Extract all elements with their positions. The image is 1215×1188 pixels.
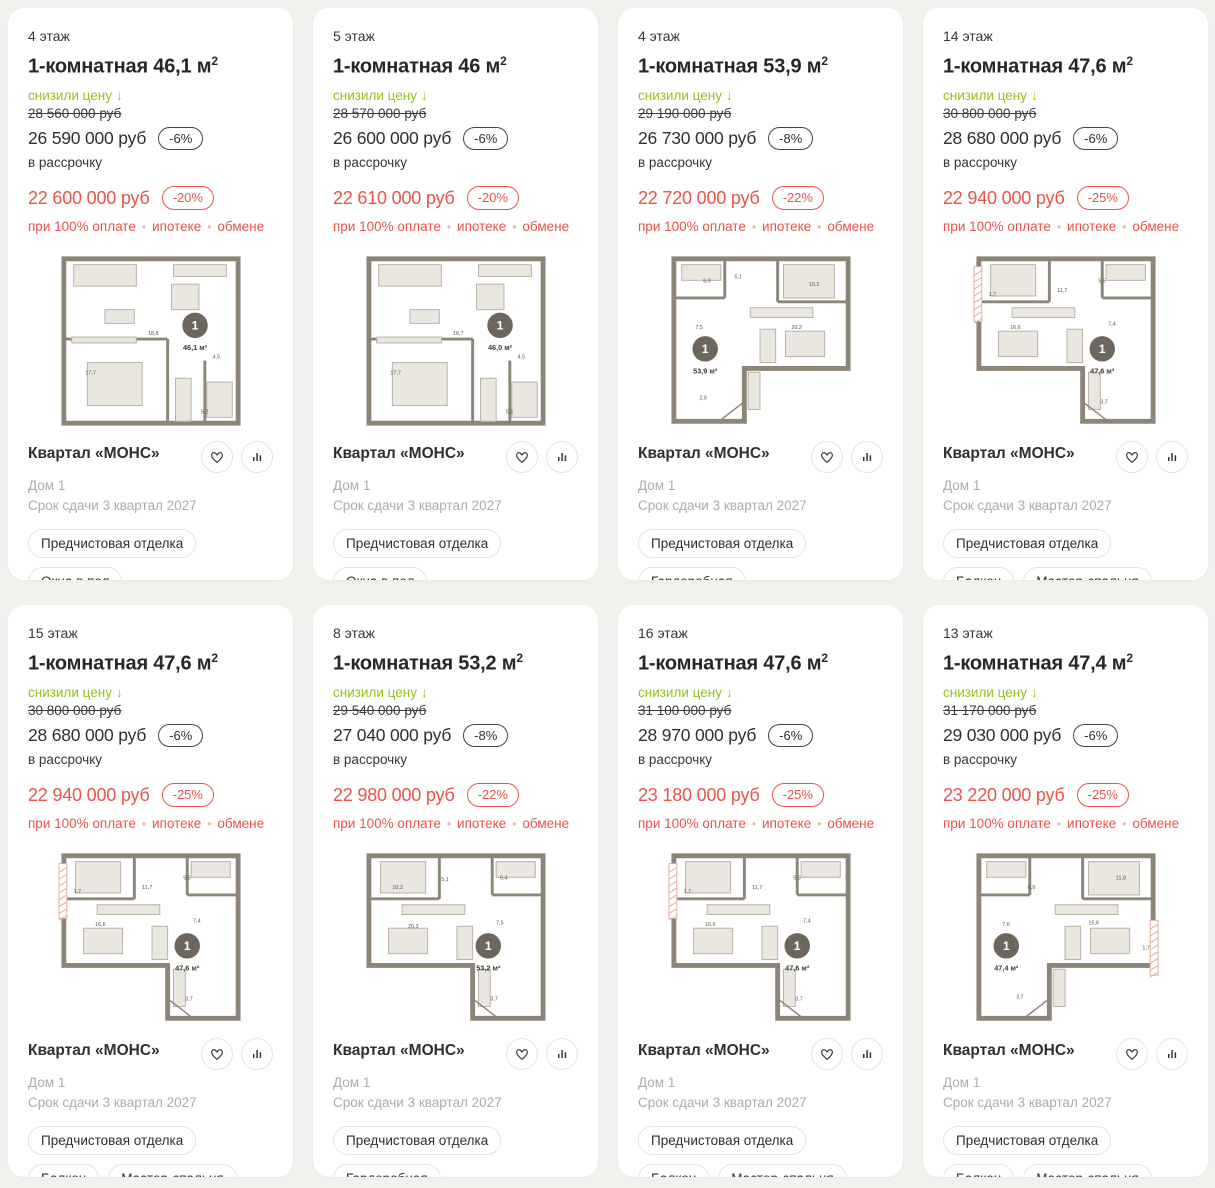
project-name[interactable]: Квартал «МОНС» (638, 1042, 770, 1060)
feature-tag[interactable]: Мастер-спальня (108, 1164, 236, 1177)
condition-exchange: обмене (217, 816, 264, 831)
deadline-label: Срок сдачи 3 квартал 2027 (333, 498, 578, 513)
condition-mortgage: ипотеке (762, 816, 811, 831)
installment-price: 22 610 000 руб (333, 188, 455, 209)
price-reduced-label: снизили цену↓ (638, 685, 883, 700)
floor-label: 5 этаж (333, 28, 578, 44)
installment-price: 23 180 000 руб (638, 785, 760, 806)
main-price: 28 680 000 руб (28, 725, 146, 746)
installment-price-row: 23 180 000 руб -25% (638, 783, 883, 807)
payment-conditions: при 100% оплате•ипотеке•обмене (943, 219, 1188, 234)
main-price: 26 590 000 руб (28, 128, 146, 149)
payment-conditions: при 100% оплате•ипотеке•обмене (28, 219, 273, 234)
svg-text:7,5: 7,5 (496, 920, 503, 926)
compare-button[interactable] (851, 1038, 883, 1070)
svg-text:53,9 м²: 53,9 м² (693, 366, 718, 375)
card-footer: Квартал «МОНС» (638, 1042, 883, 1070)
installment-price: 22 600 000 руб (28, 188, 150, 209)
card-action-buttons (201, 441, 273, 473)
card-footer: Квартал «МОНС» (943, 1042, 1188, 1070)
condition-full-payment: при 100% оплате (333, 816, 441, 831)
deadline-label: Срок сдачи 3 квартал 2027 (638, 1095, 883, 1110)
feature-tag[interactable]: Предчистовая отделка (638, 1126, 806, 1155)
square-meter-sup: 2 (211, 651, 217, 665)
apartment-title-text: 1-комнатная 53,2 м (333, 653, 516, 675)
old-price: 28 570 000 руб (333, 106, 578, 121)
installment-price: 22 940 000 руб (28, 785, 150, 806)
floor-plan[interactable]: 11,79,51,716,67,43,7147,6 м² (638, 842, 883, 1034)
svg-text:18,7: 18,7 (453, 331, 463, 337)
floor-plan-svg: 11,79,51,716,67,43,7147,6 м² (973, 252, 1159, 430)
price-reduced-text: снизили цену (943, 88, 1027, 103)
apartment-title-text: 1-комнатная 47,6 м (638, 653, 821, 675)
feature-tag[interactable]: Балкон (943, 1164, 1014, 1177)
favorite-button[interactable] (811, 1038, 843, 1070)
tags: Предчистовая отделкаОкна в пол (333, 529, 578, 580)
main-price: 27 040 000 руб (333, 725, 451, 746)
svg-text:53,2 м²: 53,2 м² (476, 963, 501, 972)
installment-label: в рассрочку (28, 155, 273, 170)
svg-text:1: 1 (701, 342, 708, 356)
installment-label: в рассрочку (638, 752, 883, 767)
discount-badge: -6% (1073, 127, 1118, 151)
svg-text:16,6: 16,6 (705, 922, 715, 928)
main-price: 26 600 000 руб (333, 128, 451, 149)
heart-icon (209, 1046, 225, 1062)
discount-badge: -6% (463, 127, 508, 151)
tags: Предчистовая отделкаГардеробнаяМастер-сп… (333, 1126, 578, 1177)
feature-tag[interactable]: Предчистовая отделка (333, 1126, 501, 1155)
project-name[interactable]: Квартал «МОНС» (638, 445, 770, 463)
price-row: 27 040 000 руб -8% (333, 724, 578, 748)
floor-plan-svg: 6,95,110,27,520,22,9153,9 м² (668, 252, 854, 430)
tags: Предчистовая отделкаБалконМастер-спальня (943, 1126, 1188, 1177)
payment-conditions: при 100% оплате•ипотеке•обмене (28, 816, 273, 831)
condition-mortgage: ипотеке (152, 219, 201, 234)
svg-text:6,4: 6,4 (500, 875, 507, 881)
installment-label: в рассрочку (333, 155, 578, 170)
bar-chart-icon (554, 1046, 570, 1062)
payment-conditions: при 100% оплате•ипотеке•обмене (333, 816, 578, 831)
floor-plan-svg: 11,79,51,716,67,43,7147,6 м² (668, 849, 854, 1027)
payment-conditions: при 100% оплате•ипотеке•обмене (333, 219, 578, 234)
installment-price-row: 22 940 000 руб -25% (28, 783, 273, 807)
deadline-label: Срок сдачи 3 квартал 2027 (943, 1095, 1188, 1110)
listing-card[interactable]: 4 этаж 1-комнатная 53,9 м2 снизили цену↓… (618, 8, 903, 580)
main-price: 28 680 000 руб (943, 128, 1061, 149)
arrow-down-icon: ↓ (421, 88, 428, 103)
apartment-title-text: 1-комнатная 47,4 м (943, 653, 1126, 675)
svg-text:5,2: 5,2 (200, 409, 207, 415)
feature-tag[interactable]: Окна в пол (333, 567, 427, 580)
house-label: Дом 1 (28, 1075, 273, 1090)
card-action-buttons (1116, 1038, 1188, 1070)
svg-text:3,7: 3,7 (1100, 399, 1107, 405)
price-reduced-label: снизили цену↓ (28, 88, 273, 103)
feature-tag[interactable]: Балкон (638, 1164, 709, 1177)
dot-separator: • (447, 220, 451, 234)
feature-tag[interactable]: Предчистовая отделка (638, 529, 806, 558)
installment-label: в рассрочку (638, 155, 883, 170)
svg-text:1: 1 (496, 319, 503, 333)
discount-badge: -6% (768, 724, 813, 748)
listing-card[interactable]: 13 этаж 1-комнатная 47,4 м2 снизили цену… (923, 605, 1208, 1177)
heart-icon (514, 1046, 530, 1062)
house-label: Дом 1 (638, 1075, 883, 1090)
square-meter-sup: 2 (1126, 651, 1132, 665)
old-price: 29 540 000 руб (333, 703, 578, 718)
svg-text:1: 1 (183, 939, 190, 953)
feature-tag[interactable]: Мастер-спальня (718, 1164, 846, 1177)
project-name[interactable]: Квартал «МОНС» (333, 1042, 465, 1060)
payment-conditions: при 100% оплате•ипотеке•обмене (943, 816, 1188, 831)
bar-chart-icon (249, 449, 265, 465)
condition-mortgage: ипотеке (762, 219, 811, 234)
feature-tag[interactable]: Мастер-спальня (1023, 1164, 1151, 1177)
floor-plan-svg: 6,911,87,615,61,73,7147,4 м² (973, 849, 1159, 1027)
arrow-down-icon: ↓ (1031, 88, 1038, 103)
apartment-title: 1-комнатная 53,9 м2 (638, 54, 883, 79)
feature-tag[interactable]: Предчистовая отделка (943, 1126, 1111, 1155)
installment-label: в рассрочку (943, 752, 1188, 767)
installment-discount-badge: -25% (162, 783, 214, 807)
floor-plan[interactable]: 10,25,16,420,37,53,7153,2 м² (333, 842, 578, 1034)
discount-badge: -8% (463, 724, 508, 748)
main-price: 29 030 000 руб (943, 725, 1061, 746)
apartment-title: 1-комнатная 47,6 м2 (28, 651, 273, 676)
old-price: 29 190 000 руб (638, 106, 883, 121)
condition-mortgage: ипотеке (1067, 219, 1116, 234)
price-row: 28 680 000 руб -6% (28, 724, 273, 748)
listing-card[interactable]: 8 этаж 1-комнатная 53,2 м2 снизили цену↓… (313, 605, 598, 1177)
card-footer: Квартал «МОНС» (333, 1042, 578, 1070)
svg-text:5,1: 5,1 (734, 274, 741, 280)
svg-text:17,7: 17,7 (85, 370, 95, 376)
heart-icon (1124, 1046, 1140, 1062)
favorite-button[interactable] (506, 441, 538, 473)
card-action-buttons (811, 441, 883, 473)
condition-full-payment: при 100% оплате (28, 219, 136, 234)
installment-price: 22 720 000 руб (638, 188, 760, 209)
bar-chart-icon (1164, 449, 1180, 465)
installment-discount-badge: -25% (1077, 186, 1129, 210)
svg-text:6,9: 6,9 (703, 278, 710, 284)
condition-exchange: обмене (1132, 816, 1179, 831)
svg-text:18,8: 18,8 (148, 331, 158, 337)
svg-text:3,7: 3,7 (795, 996, 802, 1002)
listing-card[interactable]: 5 этаж 1-комнатная 46 м2 снизили цену↓ 2… (313, 8, 598, 580)
installment-price-row: 22 610 000 руб -20% (333, 186, 578, 210)
dot-separator: • (1122, 220, 1126, 234)
svg-text:10,2: 10,2 (808, 282, 818, 288)
heart-icon (1124, 449, 1140, 465)
card-footer: Квартал «МОНС» (28, 1042, 273, 1070)
bar-chart-icon (554, 449, 570, 465)
price-row: 26 600 000 руб -6% (333, 127, 578, 151)
floor-plan[interactable]: 18,817,74,55,2146,1 м² (28, 245, 273, 437)
price-row: 26 590 000 руб -6% (28, 127, 273, 151)
floor-label: 8 этаж (333, 625, 578, 641)
feature-tag[interactable]: Окна в пол (28, 567, 122, 580)
arrow-down-icon: ↓ (726, 685, 733, 700)
apartment-title-text: 1-комнатная 47,6 м (943, 56, 1126, 78)
compare-button[interactable] (1156, 1038, 1188, 1070)
project-name[interactable]: Квартал «МОНС» (28, 445, 160, 463)
dot-separator: • (752, 220, 756, 234)
price-reduced-text: снизили цену (638, 685, 722, 700)
favorite-button[interactable] (811, 441, 843, 473)
project-name[interactable]: Квартал «МОНС» (333, 445, 465, 463)
compare-button[interactable] (851, 441, 883, 473)
favorite-button[interactable] (1116, 441, 1148, 473)
feature-tag[interactable]: Предчистовая отделка (333, 529, 501, 558)
favorite-button[interactable] (201, 441, 233, 473)
floor-plan[interactable]: 11,79,61,716,67,43,7147,6 м² (28, 842, 273, 1034)
floor-plan[interactable]: 18,717,74,55,1146,0 м² (333, 245, 578, 437)
svg-text:6,9: 6,9 (1027, 885, 1034, 891)
old-price: 30 800 000 руб (943, 106, 1188, 121)
price-reduced-text: снизили цену (638, 88, 722, 103)
heart-icon (514, 449, 530, 465)
old-price: 30 800 000 руб (28, 703, 273, 718)
svg-text:11,8: 11,8 (1115, 875, 1125, 881)
condition-exchange: обмене (827, 816, 874, 831)
feature-tag[interactable]: Гардеробная (333, 1164, 441, 1177)
condition-exchange: обмене (827, 219, 874, 234)
feature-tag[interactable]: Балкон (28, 1164, 99, 1177)
svg-text:20,2: 20,2 (791, 325, 801, 331)
condition-exchange: обмене (1132, 219, 1179, 234)
installment-discount-badge: -20% (162, 186, 214, 210)
square-meter-sup: 2 (821, 54, 827, 68)
svg-text:11,7: 11,7 (1057, 288, 1067, 294)
house-label: Дом 1 (943, 478, 1188, 493)
svg-text:1: 1 (484, 939, 491, 953)
project-name[interactable]: Квартал «МОНС» (943, 445, 1075, 463)
price-reduced-label: снизили цену↓ (333, 685, 578, 700)
main-price: 28 970 000 руб (638, 725, 756, 746)
svg-text:17,7: 17,7 (390, 370, 400, 376)
dot-separator: • (1057, 817, 1061, 831)
card-action-buttons (506, 441, 578, 473)
listing-card[interactable]: 14 этаж 1-комнатная 47,6 м2 снизили цену… (923, 8, 1208, 580)
card-action-buttons (1116, 441, 1188, 473)
compare-button[interactable] (241, 441, 273, 473)
price-reduced-label: снизили цену↓ (943, 88, 1188, 103)
installment-discount-badge: -20% (467, 186, 519, 210)
project-name[interactable]: Квартал «МОНС» (943, 1042, 1075, 1060)
feature-tag[interactable]: Балкон (943, 567, 1014, 580)
dot-separator: • (142, 220, 146, 234)
feature-tag[interactable]: Предчистовая отделка (28, 1126, 196, 1155)
deadline-label: Срок сдачи 3 квартал 2027 (28, 498, 273, 513)
svg-text:3,7: 3,7 (1016, 995, 1023, 1001)
installment-discount-badge: -22% (467, 783, 519, 807)
card-action-buttons (201, 1038, 273, 1070)
price-reduced-text: снизили цену (333, 685, 417, 700)
arrow-down-icon: ↓ (1031, 685, 1038, 700)
house-label: Дом 1 (333, 478, 578, 493)
svg-text:3,7: 3,7 (490, 996, 497, 1002)
arrow-down-icon: ↓ (421, 685, 428, 700)
svg-text:47,4 м²: 47,4 м² (994, 963, 1019, 972)
condition-exchange: обмене (217, 219, 264, 234)
feature-tag[interactable]: Предчистовая отделка (28, 529, 196, 558)
listing-card[interactable]: 4 этаж 1-комнатная 46,1 м2 снизили цену↓… (8, 8, 293, 580)
old-price: 28 560 000 руб (28, 106, 273, 121)
installment-price-row: 22 600 000 руб -20% (28, 186, 273, 210)
svg-text:4,5: 4,5 (517, 354, 524, 360)
apartment-title-text: 1-комнатная 53,9 м (638, 56, 821, 78)
condition-full-payment: при 100% оплате (333, 219, 441, 234)
svg-text:7,5: 7,5 (695, 325, 702, 331)
favorite-button[interactable] (506, 1038, 538, 1070)
floor-label: 4 этаж (28, 28, 273, 44)
square-meter-sup: 2 (821, 651, 827, 665)
svg-text:47,6 м²: 47,6 м² (1090, 366, 1115, 375)
svg-text:7,6: 7,6 (1002, 922, 1009, 928)
svg-text:1,7: 1,7 (1142, 946, 1149, 952)
floor-plan-svg: 11,79,61,716,67,43,7147,6 м² (58, 849, 244, 1027)
svg-text:16,6: 16,6 (1010, 325, 1020, 331)
dot-separator: • (1057, 220, 1061, 234)
listings-grid: 4 этаж 1-комнатная 46,1 м2 снизили цену↓… (0, 0, 1215, 1185)
arrow-down-icon: ↓ (726, 88, 733, 103)
listing-card[interactable]: 16 этаж 1-комнатная 47,6 м2 снизили цену… (618, 605, 903, 1177)
svg-text:2,9: 2,9 (699, 396, 706, 402)
apartment-title: 1-комнатная 46 м2 (333, 54, 578, 79)
svg-text:9,6: 9,6 (183, 875, 190, 881)
condition-full-payment: при 100% оплате (638, 219, 746, 234)
svg-text:1,7: 1,7 (683, 889, 690, 895)
svg-text:11,7: 11,7 (142, 885, 152, 891)
old-price: 31 170 000 руб (943, 703, 1188, 718)
old-price: 31 100 000 руб (638, 703, 883, 718)
card-footer: Квартал «МОНС» (28, 445, 273, 473)
bar-chart-icon (859, 1046, 875, 1062)
price-reduced-text: снизили цену (28, 685, 112, 700)
svg-text:10,2: 10,2 (392, 885, 402, 891)
installment-price: 23 220 000 руб (943, 785, 1065, 806)
price-reduced-label: снизили цену↓ (943, 685, 1188, 700)
condition-full-payment: при 100% оплате (28, 816, 136, 831)
installment-label: в рассрочку (333, 752, 578, 767)
deadline-label: Срок сдачи 3 квартал 2027 (333, 1095, 578, 1110)
house-label: Дом 1 (943, 1075, 1188, 1090)
tags: Предчистовая отделкаБалконМастер-спальня (943, 529, 1188, 580)
svg-text:1,7: 1,7 (73, 889, 80, 895)
price-row: 29 030 000 руб -6% (943, 724, 1188, 748)
square-meter-sup: 2 (500, 54, 506, 68)
dot-separator: • (512, 220, 516, 234)
floor-label: 16 этаж (638, 625, 883, 641)
apartment-title-text: 1-комнатная 46 м (333, 56, 500, 78)
bar-chart-icon (859, 449, 875, 465)
svg-text:7,4: 7,4 (803, 918, 810, 924)
floor-plan[interactable]: 11,79,51,716,67,43,7147,6 м² (943, 245, 1188, 437)
compare-button[interactable] (546, 1038, 578, 1070)
floor-plan-svg: 18,817,74,55,2146,1 м² (58, 252, 244, 430)
compare-button[interactable] (241, 1038, 273, 1070)
installment-label: в рассрочку (943, 155, 1188, 170)
listing-card[interactable]: 15 этаж 1-комнатная 47,6 м2 снизили цену… (8, 605, 293, 1177)
dot-separator: • (752, 817, 756, 831)
price-row: 28 970 000 руб -6% (638, 724, 883, 748)
compare-button[interactable] (1156, 441, 1188, 473)
svg-text:1: 1 (1098, 342, 1105, 356)
apartment-title: 1-комнатная 46,1 м2 (28, 54, 273, 79)
svg-text:47,6 м²: 47,6 м² (785, 963, 810, 972)
apartment-title: 1-комнатная 53,2 м2 (333, 651, 578, 676)
apartment-title: 1-комнатная 47,6 м2 (943, 54, 1188, 79)
feature-tag[interactable]: Гардеробная (638, 567, 746, 580)
favorite-button[interactable] (201, 1038, 233, 1070)
dot-separator: • (817, 220, 821, 234)
discount-badge: -8% (768, 127, 813, 151)
floor-label: 4 этаж (638, 28, 883, 44)
square-meter-sup: 2 (516, 651, 522, 665)
floor-label: 15 этаж (28, 625, 273, 641)
svg-text:16,6: 16,6 (95, 922, 105, 928)
condition-exchange: обмене (522, 219, 569, 234)
installment-discount-badge: -22% (772, 186, 824, 210)
deadline-label: Срок сдачи 3 квартал 2027 (28, 1095, 273, 1110)
price-reduced-label: снизили цену↓ (333, 88, 578, 103)
apartment-title: 1-комнатная 47,6 м2 (638, 651, 883, 676)
condition-full-payment: при 100% оплате (943, 219, 1051, 234)
payment-conditions: при 100% оплате•ипотеке•обмене (638, 816, 883, 831)
card-footer: Квартал «МОНС» (943, 445, 1188, 473)
price-row: 26 730 000 руб -8% (638, 127, 883, 151)
tags: Предчистовая отделкаОкна в пол (28, 529, 273, 580)
condition-mortgage: ипотеке (457, 219, 506, 234)
feature-tag[interactable]: Предчистовая отделка (943, 529, 1111, 558)
favorite-button[interactable] (1116, 1038, 1148, 1070)
price-reduced-text: снизили цену (28, 88, 112, 103)
installment-price: 22 980 000 руб (333, 785, 455, 806)
dot-separator: • (447, 817, 451, 831)
floor-label: 14 этаж (943, 28, 1188, 44)
svg-text:20,3: 20,3 (408, 924, 418, 930)
price-row: 28 680 000 руб -6% (943, 127, 1188, 151)
compare-button[interactable] (546, 441, 578, 473)
svg-text:4,5: 4,5 (212, 354, 219, 360)
svg-text:3,7: 3,7 (185, 996, 192, 1002)
condition-mortgage: ипотеке (152, 816, 201, 831)
installment-price-row: 22 720 000 руб -22% (638, 186, 883, 210)
floor-plan[interactable]: 6,911,87,615,61,73,7147,4 м² (943, 842, 1188, 1034)
dot-separator: • (512, 817, 516, 831)
svg-text:5,1: 5,1 (441, 877, 448, 883)
card-action-buttons (506, 1038, 578, 1070)
tags: Предчистовая отделкаГардеробнаяМастер-сп… (638, 529, 883, 580)
svg-text:11,7: 11,7 (752, 885, 762, 891)
bar-chart-icon (249, 1046, 265, 1062)
card-action-buttons (811, 1038, 883, 1070)
tags: Предчистовая отделкаБалконМастер-спальня (638, 1126, 883, 1177)
arrow-down-icon: ↓ (116, 88, 123, 103)
feature-tag[interactable]: Мастер-спальня (1023, 567, 1151, 580)
svg-text:15,6: 15,6 (1088, 920, 1098, 926)
installment-price-row: 22 980 000 руб -22% (333, 783, 578, 807)
project-name[interactable]: Квартал «МОНС» (28, 1042, 160, 1060)
apartment-title: 1-комнатная 47,4 м2 (943, 651, 1188, 676)
main-price: 26 730 000 руб (638, 128, 756, 149)
arrow-down-icon: ↓ (116, 685, 123, 700)
condition-exchange: обмене (522, 816, 569, 831)
floor-plan[interactable]: 6,95,110,27,520,22,9153,9 м² (638, 245, 883, 437)
dot-separator: • (1122, 817, 1126, 831)
